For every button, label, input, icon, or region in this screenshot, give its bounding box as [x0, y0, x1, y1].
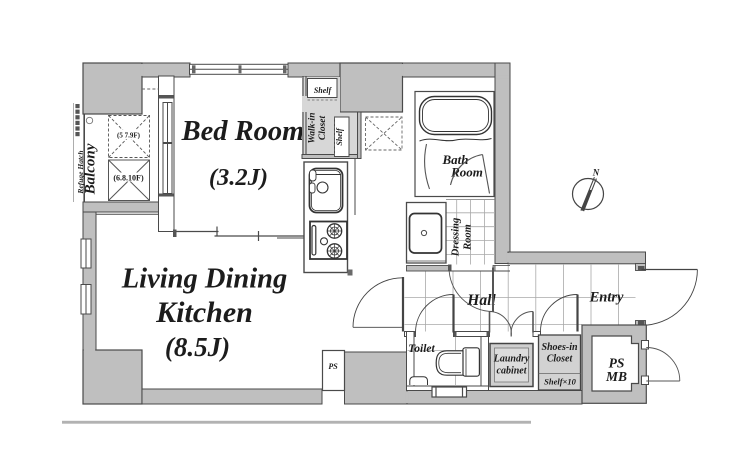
svg-text:Shelf: Shelf [335, 127, 344, 146]
svg-text:(6.8.10F): (6.8.10F) [113, 174, 144, 183]
svg-text:PS: PS [328, 362, 338, 371]
svg-text:Room: Room [463, 224, 474, 251]
svg-text:Shelf×10: Shelf×10 [544, 377, 577, 387]
svg-text:Dressing: Dressing [451, 218, 462, 258]
svg-text:Laundry: Laundry [493, 354, 530, 365]
svg-text:(5 7.9F): (5 7.9F) [117, 132, 141, 140]
svg-text:cabinet: cabinet [497, 366, 528, 377]
svg-text:Kitchen: Kitchen [155, 296, 253, 329]
svg-text:Refuge Hatch: Refuge Hatch [76, 150, 85, 194]
svg-text:(8.5J): (8.5J) [165, 332, 230, 362]
svg-text:Room: Room [450, 165, 483, 180]
svg-text:Hall: Hall [466, 292, 496, 309]
svg-text:Entry: Entry [589, 290, 624, 306]
svg-text:MB: MB [605, 369, 627, 384]
svg-text:Bed Room: Bed Room [181, 116, 305, 147]
svg-text:Closet: Closet [318, 116, 328, 141]
svg-text:Walk-in: Walk-in [308, 113, 318, 144]
svg-text:Toilet: Toilet [408, 343, 435, 355]
svg-text:Shelf: Shelf [314, 86, 333, 95]
svg-text:(3.2J): (3.2J) [209, 164, 268, 191]
svg-text:Closet: Closet [547, 354, 574, 365]
svg-text:Shoes-in: Shoes-in [541, 342, 578, 353]
svg-text:Living Dining: Living Dining [121, 264, 288, 295]
svg-text:N: N [592, 168, 600, 178]
